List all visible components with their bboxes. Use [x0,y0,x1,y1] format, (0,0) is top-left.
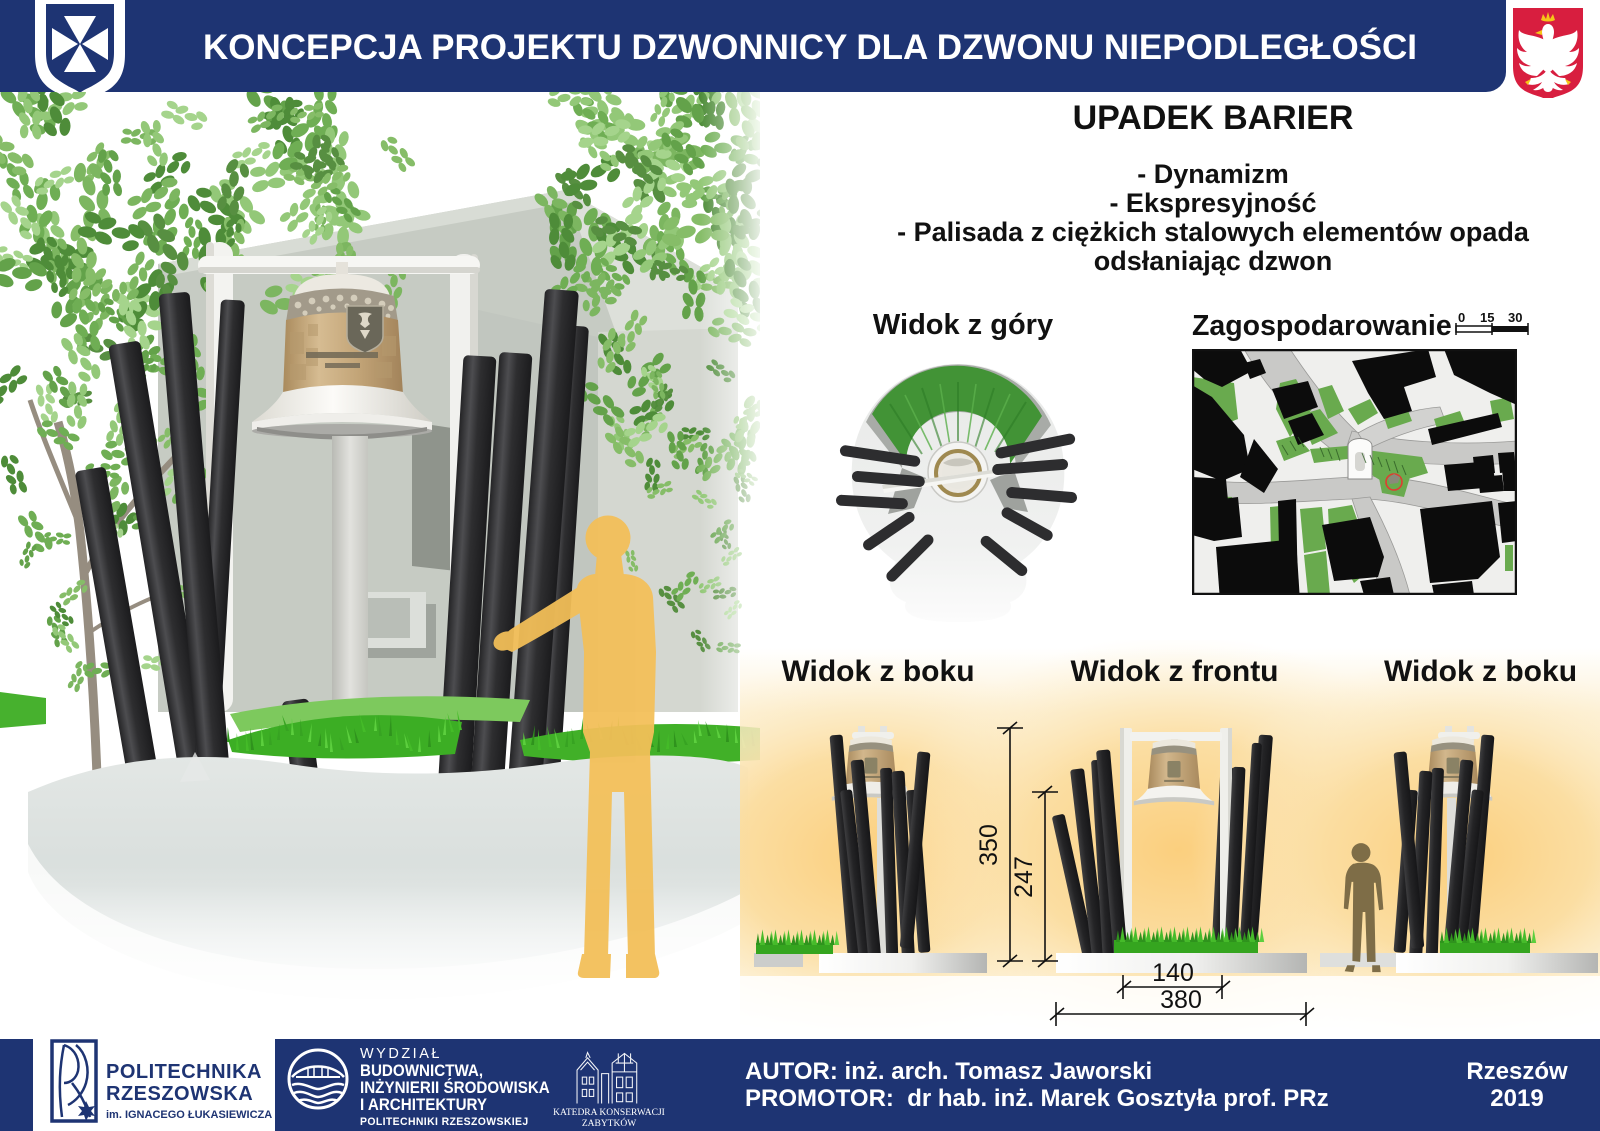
svg-text:140: 140 [1152,959,1194,987]
svg-text:247: 247 [1010,856,1038,898]
svg-text:380: 380 [1160,986,1202,1014]
svg-text:30: 30 [1508,310,1522,325]
svg-text:350: 350 [975,824,1003,866]
